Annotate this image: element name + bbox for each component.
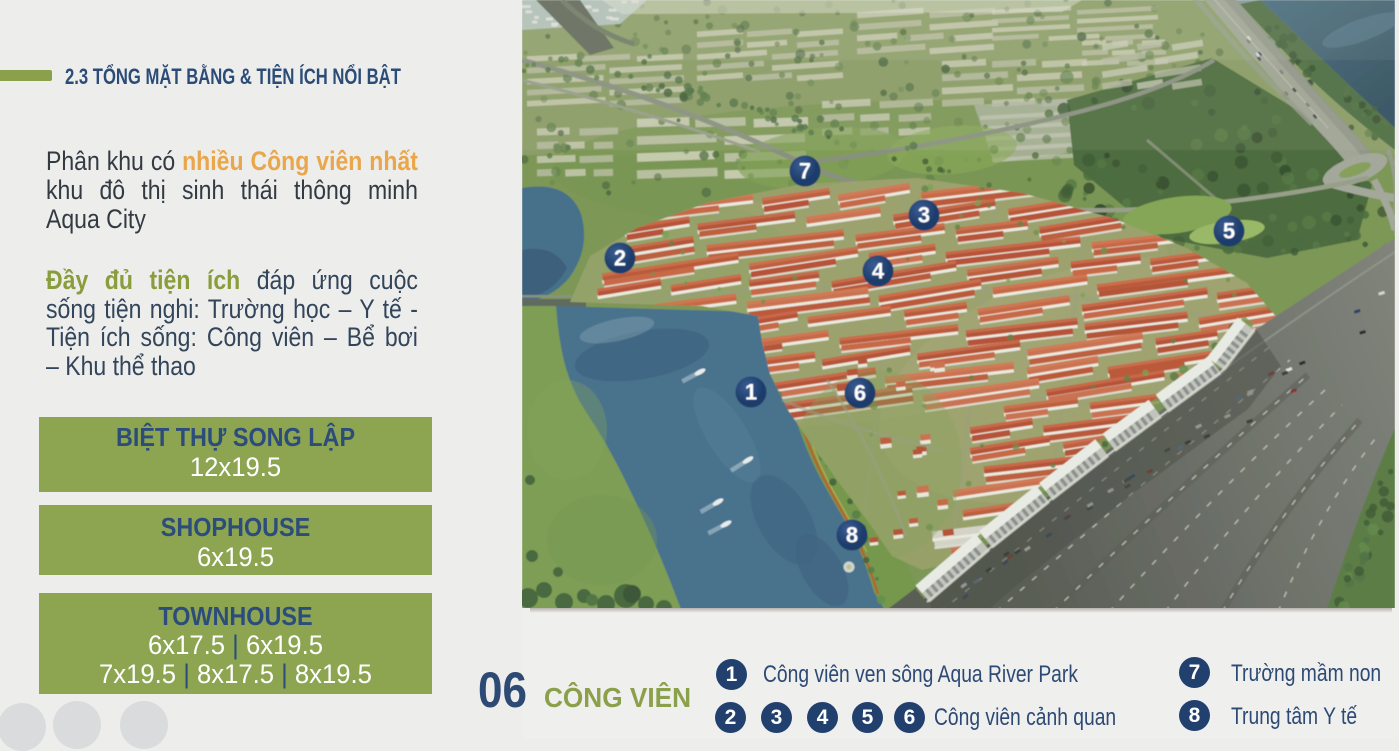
svg-text:7: 7	[799, 159, 811, 184]
svg-text:8: 8	[846, 523, 858, 548]
svg-text:2: 2	[614, 246, 626, 271]
svg-text:4: 4	[872, 259, 885, 284]
svg-text:6: 6	[854, 381, 866, 406]
svg-text:5: 5	[1223, 219, 1235, 244]
svg-text:1: 1	[745, 380, 757, 405]
svg-text:3: 3	[918, 203, 930, 228]
